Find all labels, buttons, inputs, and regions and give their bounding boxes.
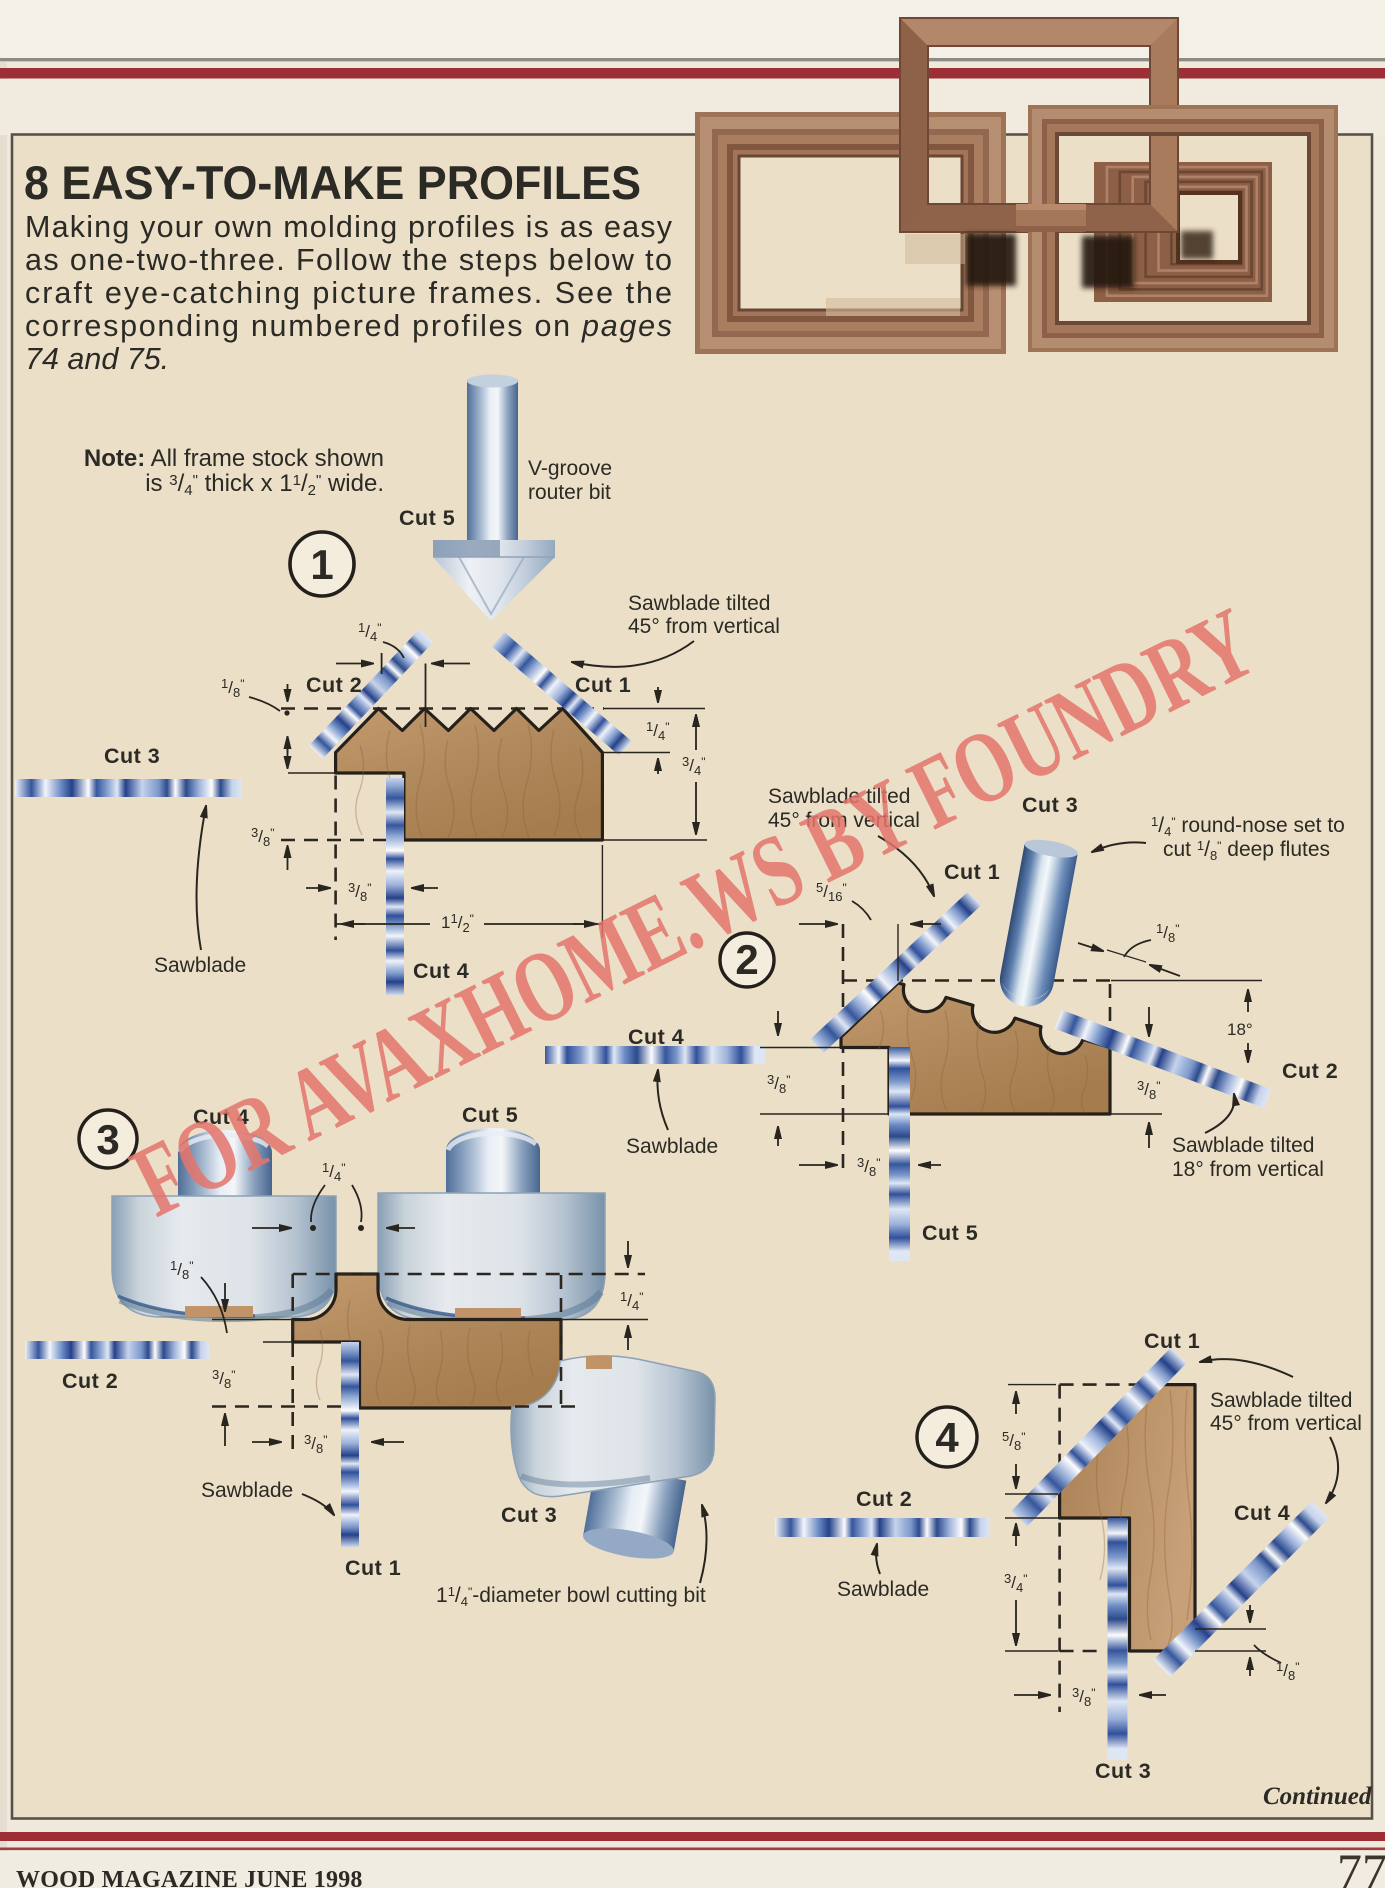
svg-text:45° from vertical: 45° from vertical [1210,1412,1362,1435]
svg-text:Cut 4: Cut 4 [1234,1501,1290,1525]
svg-text:is 3/4" thick x 11/2" wide.: is 3/4" thick x 11/2" wide. [145,470,384,499]
svg-text:Cut 4: Cut 4 [628,1025,684,1049]
svg-text:Cut 5: Cut 5 [399,506,455,530]
svg-text:Cut 1: Cut 1 [575,673,631,697]
svg-text:11/4"-diameter bowl cutting bi: 11/4"-diameter bowl cutting bit [436,1584,706,1609]
svg-text:as one-two-three. Follow the s: as one-two-three. Follow the steps below… [25,243,672,277]
svg-text:74 and 75.: 74 and 75. [25,342,169,376]
svg-text:Cut 2: Cut 2 [1282,1059,1338,1083]
svg-text:Cut 1: Cut 1 [1144,1329,1200,1353]
svg-text:router bit: router bit [528,481,611,504]
svg-text:18°: 18° [1227,1020,1253,1039]
svg-text:8 EASY-TO-MAKE PROFILES: 8 EASY-TO-MAKE PROFILES [24,156,641,209]
svg-text:Sawblade tilted: Sawblade tilted [1172,1134,1314,1157]
svg-text:Sawblade: Sawblade [837,1578,929,1601]
svg-text:Sawblade: Sawblade [626,1135,718,1158]
svg-text:18° from vertical: 18° from vertical [1172,1158,1324,1181]
svg-text:Making your own molding profil: Making your own molding profiles is as e… [25,210,673,244]
svg-text:Cut 1: Cut 1 [944,860,1000,884]
svg-text:45° from vertical: 45° from vertical [628,615,780,638]
svg-text:corresponding numbered profi: corresponding numbered profiles on pages [25,309,672,343]
svg-text:Cut 1: Cut 1 [345,1556,401,1580]
svg-text:77: 77 [1337,1843,1385,1888]
svg-text:Cut 5: Cut 5 [462,1103,518,1127]
svg-text:Sawblade tilted: Sawblade tilted [628,592,770,615]
svg-text:1/4" round-nose set to: 1/4" round-nose set to [1151,814,1345,839]
svg-text:Continued: Continued [1263,1783,1372,1810]
svg-text:cut 1/8" deep flutes: cut 1/8" deep flutes [1163,838,1330,863]
svg-text:Sawblade: Sawblade [154,954,246,977]
svg-text:4: 4 [935,1414,959,1461]
svg-text:Cut 2: Cut 2 [62,1369,118,1393]
svg-text:Cut 5: Cut 5 [922,1221,978,1245]
svg-text:Cut 2: Cut 2 [306,673,362,697]
svg-text:Cut 3: Cut 3 [1095,1759,1151,1783]
svg-text:1: 1 [310,541,333,588]
svg-text:11/2": 11/2" [441,911,474,935]
svg-text:WOOD MAGAZINE JUNE 1998: WOOD MAGAZINE JUNE 1998 [16,1867,363,1888]
svg-text:V-groove: V-groove [528,457,612,480]
svg-text:Note: All frame stock shown: Note: All frame stock shown [84,445,384,472]
svg-text:Sawblade: Sawblade [201,1479,293,1502]
svg-text:Cut 3: Cut 3 [104,744,160,768]
svg-text:Cut 3: Cut 3 [501,1503,557,1527]
svg-text:Sawblade tilted: Sawblade tilted [1210,1389,1352,1412]
svg-text:Cut 2: Cut 2 [856,1487,912,1511]
